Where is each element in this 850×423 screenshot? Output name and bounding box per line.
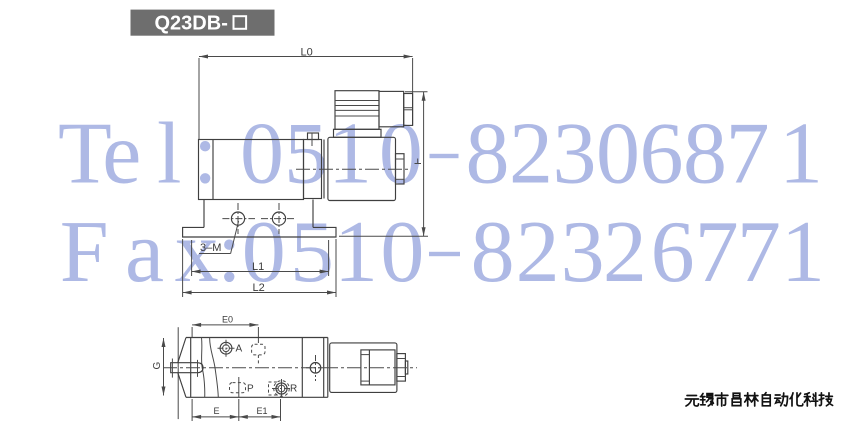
svg-text:Q23DB-: Q23DB-: [155, 12, 228, 34]
svg-text:E: E: [214, 406, 220, 416]
svg-text:L1: L1: [252, 261, 264, 273]
svg-text:3–M: 3–M: [200, 242, 221, 254]
svg-text:G: G: [152, 362, 163, 370]
svg-text:L2: L2: [253, 282, 265, 294]
svg-text:P: P: [247, 384, 254, 395]
svg-text:E1: E1: [257, 406, 268, 416]
svg-text:A: A: [236, 344, 243, 355]
svg-text:R: R: [290, 384, 297, 395]
svg-text:E0: E0: [222, 315, 233, 325]
svg-text:L0: L0: [301, 47, 313, 59]
